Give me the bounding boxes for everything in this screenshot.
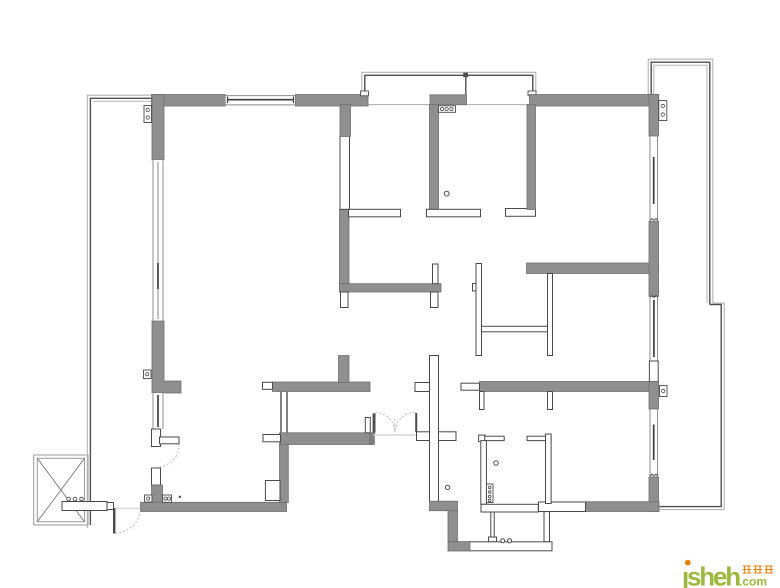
- svg-text:.com: .com: [739, 575, 767, 588]
